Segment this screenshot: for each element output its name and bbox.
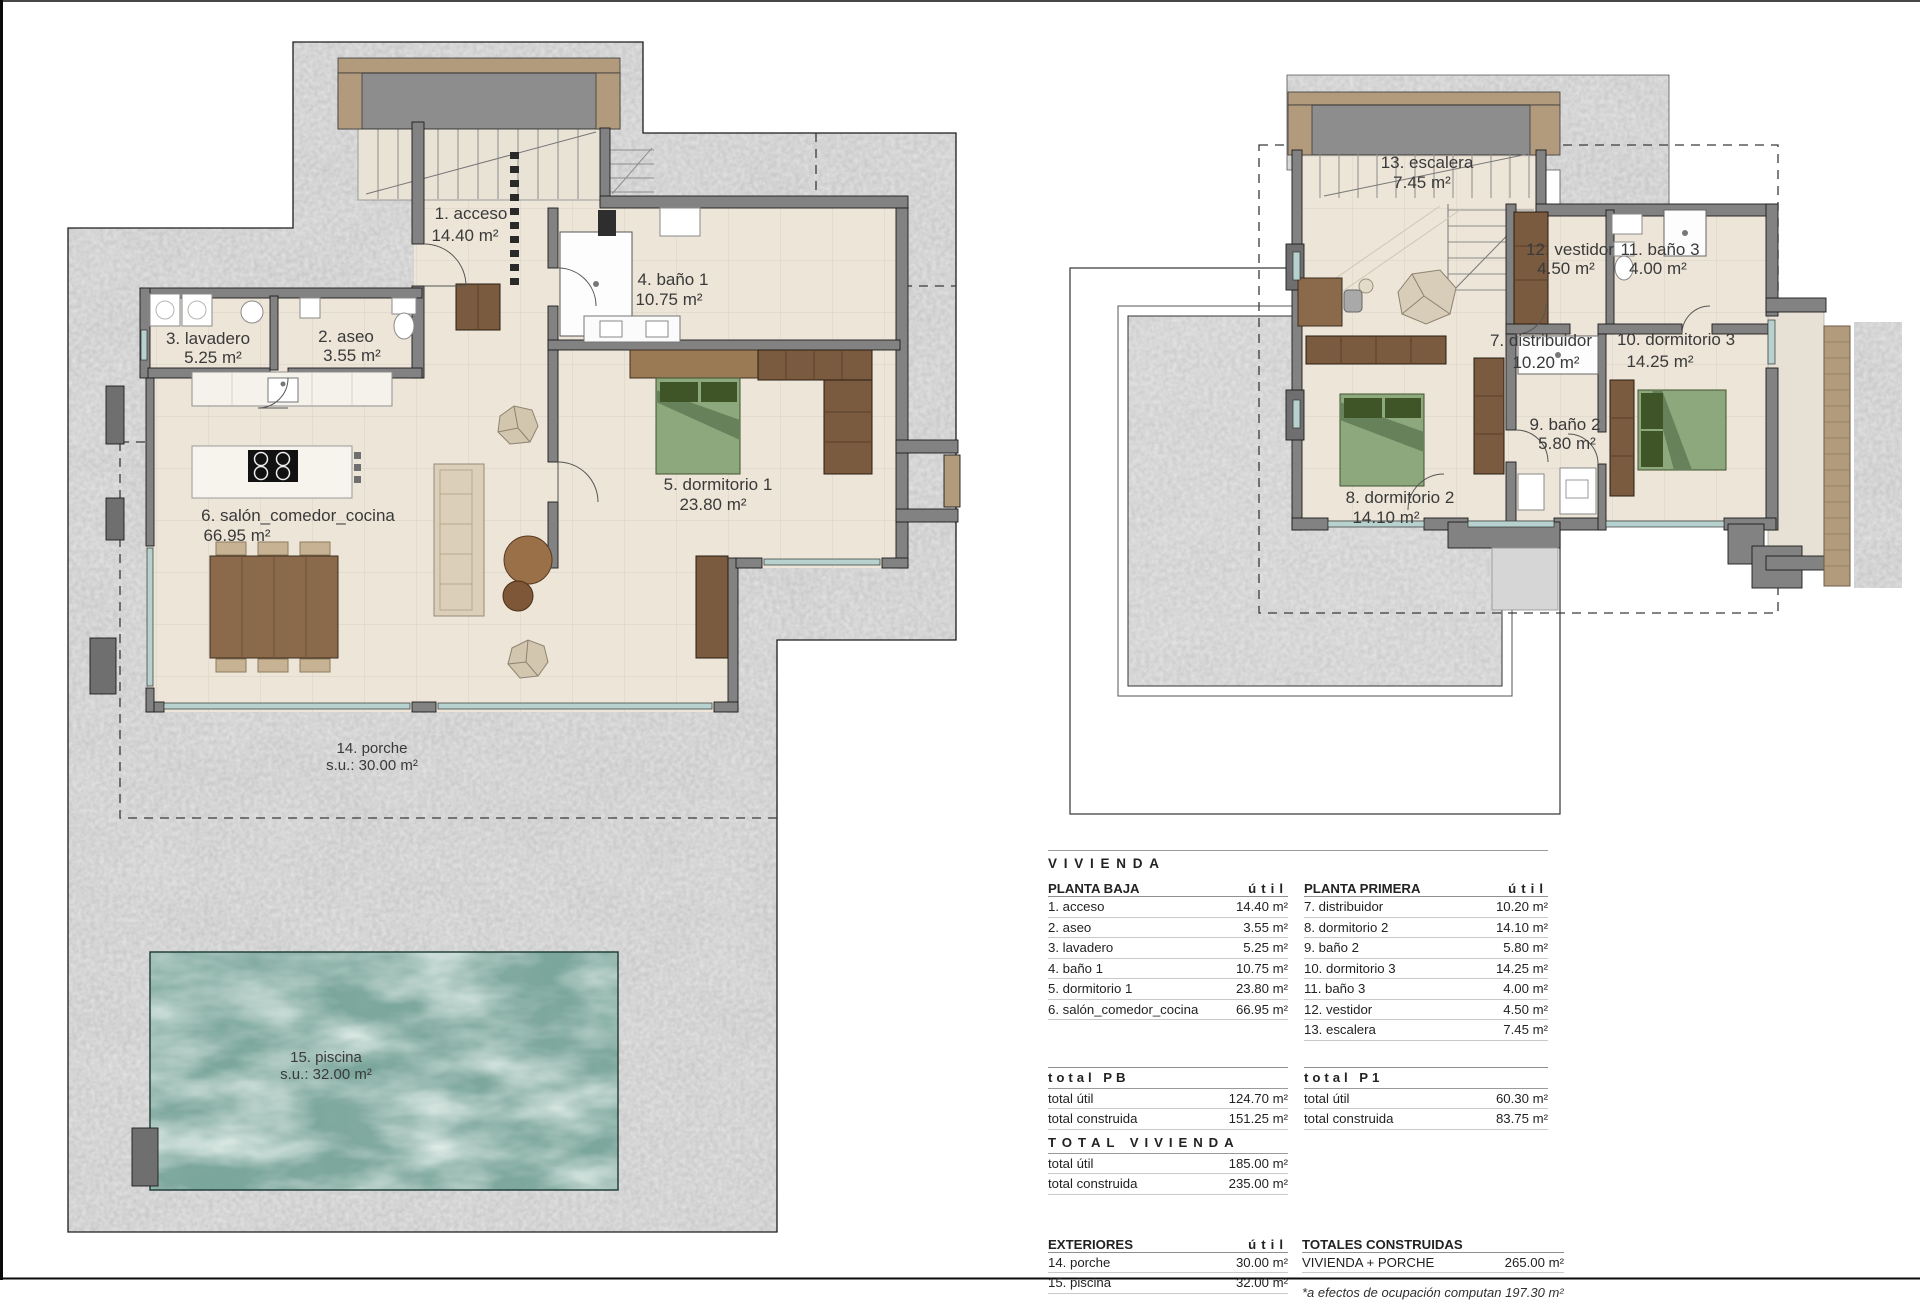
planta-baja-header: PLANTA BAJA útil: [1048, 875, 1288, 897]
summary-row: 13. escalera7.45 m²: [1304, 1020, 1548, 1041]
room-area-acceso: 14.40 m²: [431, 226, 498, 245]
room-label-escalera: 13. escalera: [1381, 153, 1474, 172]
total-p1: total P1 total útil60.30 m² total constr…: [1304, 1067, 1548, 1130]
summary-row: total construida151.25 m²: [1048, 1109, 1288, 1130]
summary-planta-baja: PLANTA BAJA útil 1. acceso14.40 m² 2. as…: [1048, 875, 1288, 1041]
totales-construidas-title: TOTALES CONSTRUIDAS: [1302, 1237, 1463, 1252]
plot-texture-east: [1854, 322, 1902, 588]
totales-construidas: TOTALES CONSTRUIDAS VIVIENDA + PORCHE265…: [1302, 1231, 1564, 1300]
summary-row: total construida83.75 m²: [1304, 1109, 1548, 1130]
room-label-vestidor: 12. vestidor: [1526, 240, 1614, 259]
occupancy-footnote: *a efectos de ocupación computan 197.30 …: [1302, 1285, 1564, 1300]
total-p1-title: total P1: [1304, 1067, 1548, 1089]
totales-construidas-header: TOTALES CONSTRUIDAS: [1302, 1231, 1564, 1253]
room-area-bano2: 5.80 m²: [1538, 434, 1596, 453]
exteriores-title: EXTERIORES: [1048, 1237, 1133, 1252]
summary-row: 3. lavadero5.25 m²: [1048, 938, 1288, 959]
total-pb: total PB total útil124.70 m² total const…: [1048, 1067, 1288, 1130]
room-area-dormitorio2: 14.10 m²: [1352, 508, 1419, 527]
floor-columns: PLANTA BAJA útil 1. acceso14.40 m² 2. as…: [1048, 875, 1548, 1041]
room-area-lavadero: 5.25 m²: [184, 348, 242, 367]
util-header: útil: [1508, 881, 1548, 896]
room-area-piscina: s.u.: 32.00 m²: [280, 1066, 372, 1083]
summary-row: 12. vestidor4.50 m²: [1304, 1000, 1548, 1021]
planta-baja-title: PLANTA BAJA: [1048, 881, 1140, 896]
floorplan-sheet: 1. acceso 14.40 m² 2. aseo 3.55 m² 3. la…: [0, 0, 1920, 1280]
summary-row: 1. acceso14.40 m²: [1048, 897, 1288, 918]
summary-row: total útil185.00 m²: [1048, 1154, 1288, 1175]
room-label-aseo: 2. aseo: [318, 327, 374, 346]
totals-columns: total PB total útil124.70 m² total const…: [1048, 1067, 1548, 1130]
room-label-distribuidor: 7. distribuidor: [1490, 331, 1592, 350]
room-label-bano1: 4. baño 1: [638, 270, 709, 289]
room-label-dormitorio1: 5. dormitorio 1: [664, 475, 773, 494]
summary-row: 6. salón_comedor_cocina66.95 m²: [1048, 1000, 1288, 1021]
room-area-dormitorio3: 14.25 m²: [1626, 352, 1693, 371]
summary-row: 15. piscina32.00 m²: [1048, 1273, 1288, 1294]
summary-row: 5. dormitorio 123.80 m²: [1048, 979, 1288, 1000]
entrance-canopy-upper: [1288, 92, 1560, 155]
summary-row: total útil60.30 m²: [1304, 1089, 1548, 1110]
summary-row: 14. porche30.00 m²: [1048, 1253, 1288, 1274]
room-label-lavadero: 3. lavadero: [166, 329, 250, 348]
planta-primera-header: PLANTA PRIMERA útil: [1304, 875, 1548, 897]
summary-planta-primera: PLANTA PRIMERA útil 7. distribuidor10.20…: [1304, 875, 1548, 1041]
summary-row: 2. aseo3.55 m²: [1048, 918, 1288, 939]
pool: [150, 952, 618, 1190]
exteriors-columns: EXTERIORES útil 14. porche30.00 m² 15. p…: [1048, 1231, 1564, 1300]
room-label-bano2: 9. baño 2: [1530, 415, 1601, 434]
total-vivienda: TOTAL VIVIENDA total útil185.00 m² total…: [1048, 1133, 1288, 1195]
ground-floor-plan: 1. acceso 14.40 m² 2. aseo 3.55 m² 3. la…: [60, 35, 965, 1240]
room-label-dormitorio3: 10. dormitorio 3: [1617, 330, 1735, 349]
area-summary: VIVIENDA PLANTA BAJA útil 1. acceso14.40…: [1048, 850, 1564, 1300]
total-vivienda-title: TOTAL VIVIENDA: [1048, 1133, 1288, 1154]
util-header: útil: [1248, 881, 1288, 896]
summary-row: VIVIENDA + PORCHE265.00 m²: [1302, 1253, 1564, 1274]
planta-primera-title: PLANTA PRIMERA: [1304, 881, 1420, 896]
summary-row: 8. dormitorio 214.10 m²: [1304, 918, 1548, 939]
room-label-salon: 6. salón_comedor_cocina: [201, 506, 395, 525]
room-area-escalera: 7.45 m²: [1393, 173, 1451, 192]
summary-title: VIVIENDA: [1048, 850, 1548, 875]
room-area-bano3: 4.00 m²: [1629, 259, 1687, 278]
room-area-porche: s.u.: 30.00 m²: [326, 757, 418, 774]
entrance-canopy: [338, 58, 620, 129]
room-label-porche: 14. porche: [337, 740, 408, 757]
summary-row: 10. dormitorio 314.25 m²: [1304, 959, 1548, 980]
room-area-salon: 66.95 m²: [203, 526, 270, 545]
room-area-vestidor: 4.50 m²: [1537, 259, 1595, 278]
room-area-bano1: 10.75 m²: [635, 290, 702, 309]
room-label-dormitorio2: 8. dormitorio 2: [1346, 488, 1455, 507]
summary-row: 4. baño 110.75 m²: [1048, 959, 1288, 980]
util-header: útil: [1248, 1237, 1288, 1252]
summary-row: total útil124.70 m²: [1048, 1089, 1288, 1110]
exteriores: EXTERIORES útil 14. porche30.00 m² 15. p…: [1048, 1231, 1288, 1300]
room-label-piscina: 15. piscina: [290, 1049, 362, 1066]
summary-row: 7. distribuidor10.20 m²: [1304, 897, 1548, 918]
room-area-aseo: 3.55 m²: [323, 346, 381, 365]
first-floor-plan: 13. escalera 7.45 m² 7. distribuidor 10.…: [1070, 70, 1902, 814]
balcony-deck: [1824, 326, 1850, 586]
room-area-distribuidor: 10.20 m²: [1512, 353, 1579, 372]
total-pb-title: total PB: [1048, 1067, 1288, 1089]
summary-row: total construida235.00 m²: [1048, 1174, 1288, 1195]
room-label-bano3: 11. baño 3: [1620, 240, 1699, 259]
room-area-dormitorio1: 23.80 m²: [679, 495, 746, 514]
summary-row: 11. baño 34.00 m²: [1304, 979, 1548, 1000]
room-label-acceso: 1. acceso: [435, 204, 508, 223]
summary-row: 9. baño 25.80 m²: [1304, 938, 1548, 959]
exteriores-header: EXTERIORES útil: [1048, 1231, 1288, 1253]
